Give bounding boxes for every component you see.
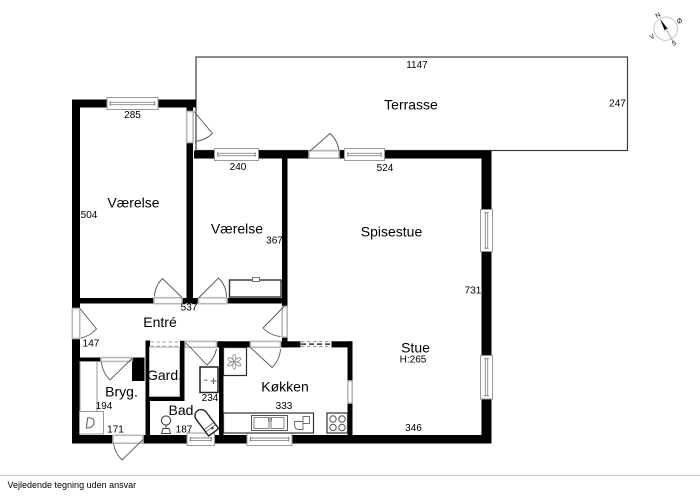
- svg-text:367: 367: [266, 236, 283, 247]
- svg-text:333: 333: [276, 401, 293, 412]
- svg-text:346: 346: [405, 423, 422, 434]
- svg-text:247: 247: [609, 99, 626, 110]
- svg-text:1147: 1147: [406, 60, 428, 71]
- svg-text:187: 187: [176, 425, 193, 436]
- svg-text:Bryg.: Bryg.: [105, 384, 138, 400]
- svg-text:Værelse: Værelse: [211, 221, 263, 237]
- svg-text:Vejledende tegning uden ansvar: Vejledende tegning uden ansvar: [8, 480, 137, 490]
- svg-text:Køkken: Køkken: [261, 379, 308, 395]
- svg-text:Spisestue: Spisestue: [361, 224, 423, 240]
- svg-text:524: 524: [377, 163, 394, 174]
- svg-text:Entré: Entré: [143, 314, 177, 330]
- svg-text:Bad: Bad: [169, 402, 194, 418]
- svg-text:171: 171: [107, 425, 124, 436]
- svg-text:731: 731: [465, 286, 482, 297]
- svg-text:504: 504: [81, 210, 98, 221]
- svg-text:Terrasse: Terrasse: [384, 97, 438, 113]
- svg-text:234: 234: [202, 393, 219, 404]
- svg-text:240: 240: [230, 162, 247, 173]
- svg-text:Værelse: Værelse: [107, 195, 159, 211]
- svg-text:537: 537: [181, 303, 198, 314]
- svg-text:285: 285: [124, 110, 141, 121]
- svg-text:Gard.: Gard.: [147, 367, 182, 383]
- svg-text:147: 147: [83, 339, 100, 350]
- svg-text:194: 194: [96, 401, 113, 412]
- svg-text:Stue: Stue: [401, 340, 430, 356]
- svg-text:H:265: H:265: [400, 355, 427, 366]
